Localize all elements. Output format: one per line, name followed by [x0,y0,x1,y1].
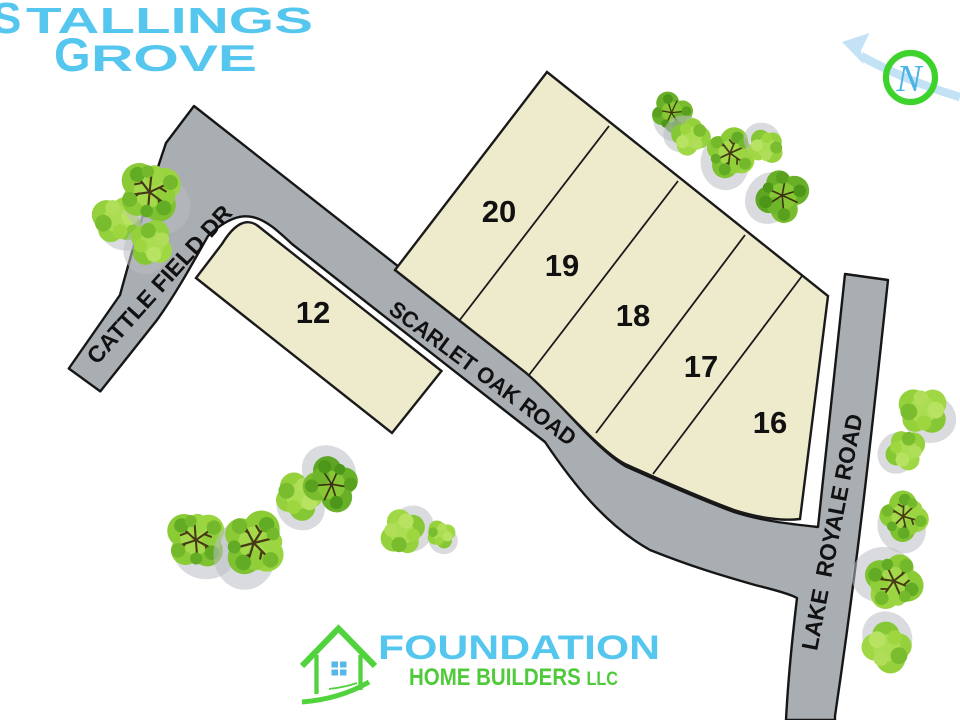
svg-text:16: 16 [753,405,787,440]
svg-text:17: 17 [684,349,718,384]
svg-text:19: 19 [545,248,579,283]
svg-text:N: N [895,58,924,100]
svg-text:S: S [0,0,21,43]
svg-text:G: G [54,28,91,81]
svg-text:HOME BUILDERS LLC: HOME BUILDERS LLC [409,664,618,691]
svg-text:18: 18 [616,298,650,333]
svg-text:FOUNDATION: FOUNDATION [378,629,660,667]
svg-text:12: 12 [296,295,330,330]
svg-text:ROVE: ROVE [91,38,257,79]
svg-text:20: 20 [482,194,516,229]
